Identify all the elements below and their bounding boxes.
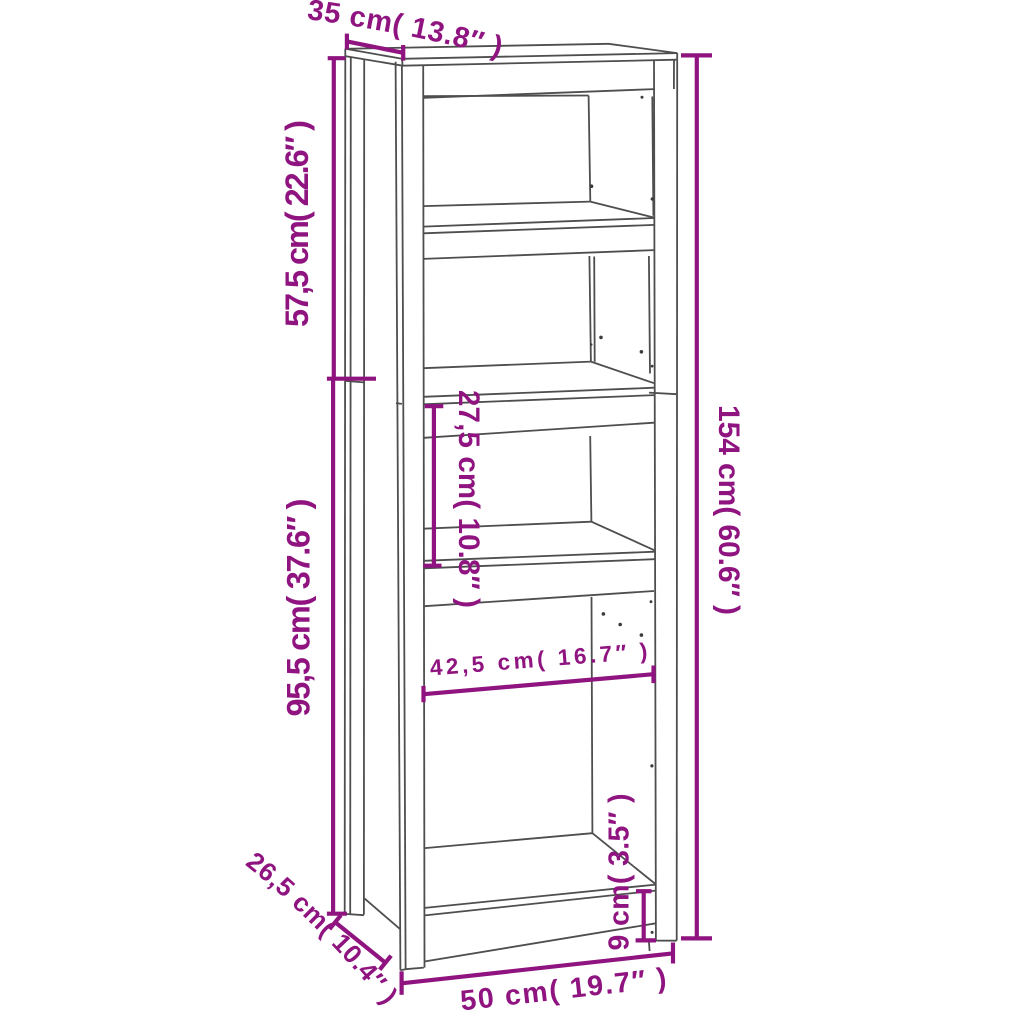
svg-text:9 cm( 3.5″ ): 9 cm( 3.5″ ) (604, 794, 636, 951)
svg-text:95,5 cm( 37.6″ ): 95,5 cm( 37.6″ ) (281, 499, 317, 717)
svg-text:27,5 cm( 10.8″ ): 27,5 cm( 10.8″ ) (452, 390, 485, 608)
svg-text:26,5 cm( 10.4″ ): 26,5 cm( 10.4″ ) (241, 846, 404, 1010)
svg-text:57,5 cm( 22.6″ ): 57,5 cm( 22.6″ ) (279, 120, 315, 327)
svg-text:50 cm( 19.7″ ): 50 cm( 19.7″ ) (459, 962, 668, 1017)
svg-text:154 cm( 60.6″ ): 154 cm( 60.6″ ) (712, 405, 745, 615)
svg-text:35 cm( 13.8″ ): 35 cm( 13.8″ ) (306, 0, 506, 63)
svg-text:42,5 cm( 16.7″ ): 42,5 cm( 16.7″ ) (429, 638, 648, 680)
